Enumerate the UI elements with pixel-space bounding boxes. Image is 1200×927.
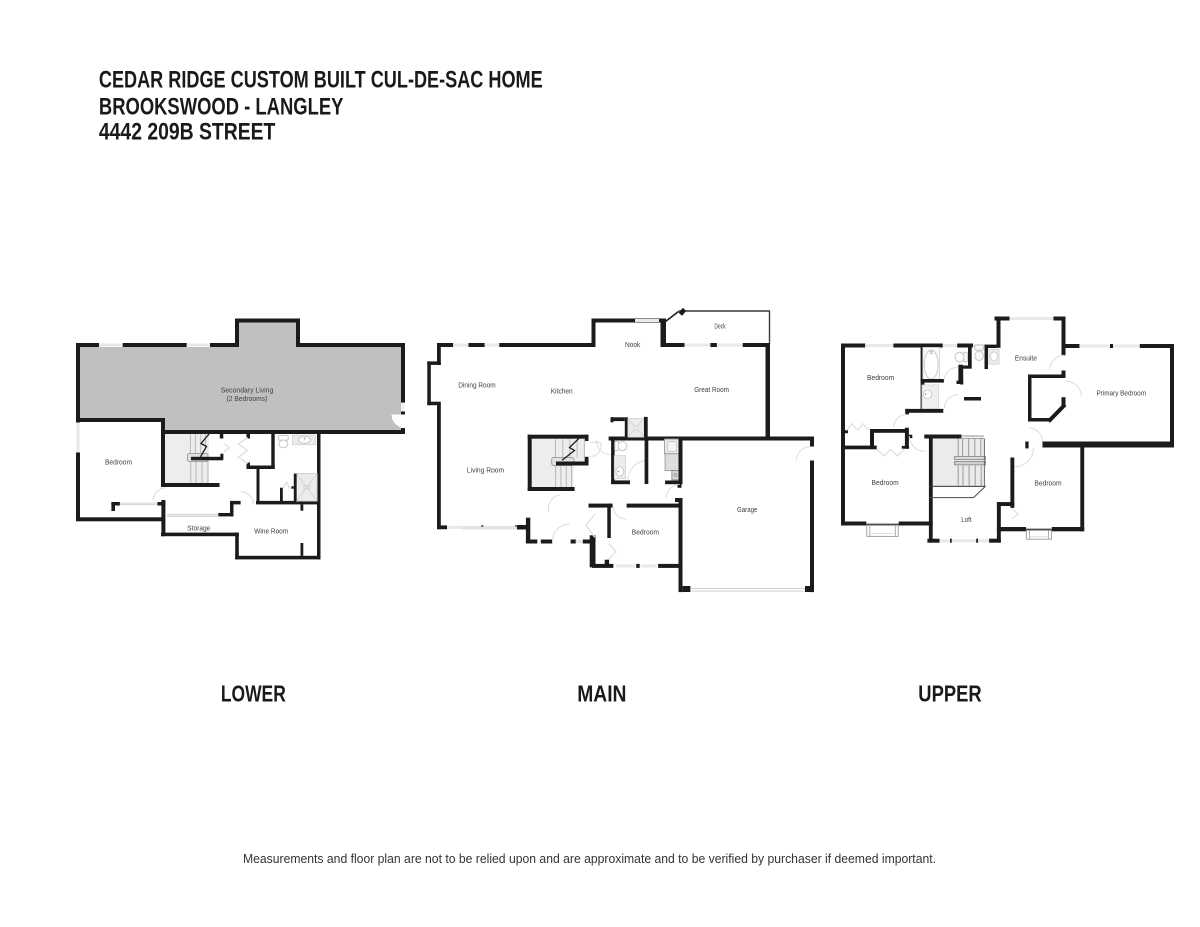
svg-text:CEDAR RIDGE CUSTOM BUILT CUL-D: CEDAR RIDGE CUSTOM BUILT CUL-DE-SAC HOME (99, 66, 543, 93)
svg-text:BROOKSWOOD - LANGLEY: BROOKSWOOD - LANGLEY (99, 93, 344, 120)
svg-text:Bedroom: Bedroom (872, 478, 899, 487)
svg-text:Nook: Nook (625, 340, 640, 349)
svg-text:Bedroom: Bedroom (105, 458, 132, 467)
svg-text:Dining Room: Dining Room (458, 381, 495, 390)
svg-text:Loft: Loft (961, 515, 972, 524)
svg-text:Storage: Storage (187, 524, 210, 533)
svg-text:4442 209B STREET: 4442 209B STREET (99, 119, 276, 146)
svg-text:Great Room: Great Room (694, 385, 729, 394)
svg-text:Garage: Garage (737, 505, 757, 514)
svg-text:Bedroom: Bedroom (1034, 478, 1061, 487)
svg-text:Deck: Deck (714, 321, 726, 330)
svg-text:Primary Bedroom: Primary Bedroom (1097, 388, 1147, 397)
svg-text:MAIN: MAIN (577, 681, 626, 707)
svg-text:Living Room: Living Room (467, 465, 504, 474)
svg-text:Ensuite: Ensuite (1015, 354, 1037, 363)
svg-text:UPPER: UPPER (918, 681, 981, 707)
svg-text:Bedroom: Bedroom (632, 527, 659, 536)
svg-text:Measurements and floor plan ar: Measurements and floor plan are not to b… (243, 851, 936, 866)
svg-text:Wine Room: Wine Room (254, 527, 288, 536)
svg-text:LOWER: LOWER (221, 681, 286, 707)
svg-text:Bedroom: Bedroom (867, 373, 894, 382)
svg-text:Kitchen: Kitchen (551, 386, 573, 395)
svg-text:(2 Bedrooms): (2 Bedrooms) (227, 394, 268, 403)
